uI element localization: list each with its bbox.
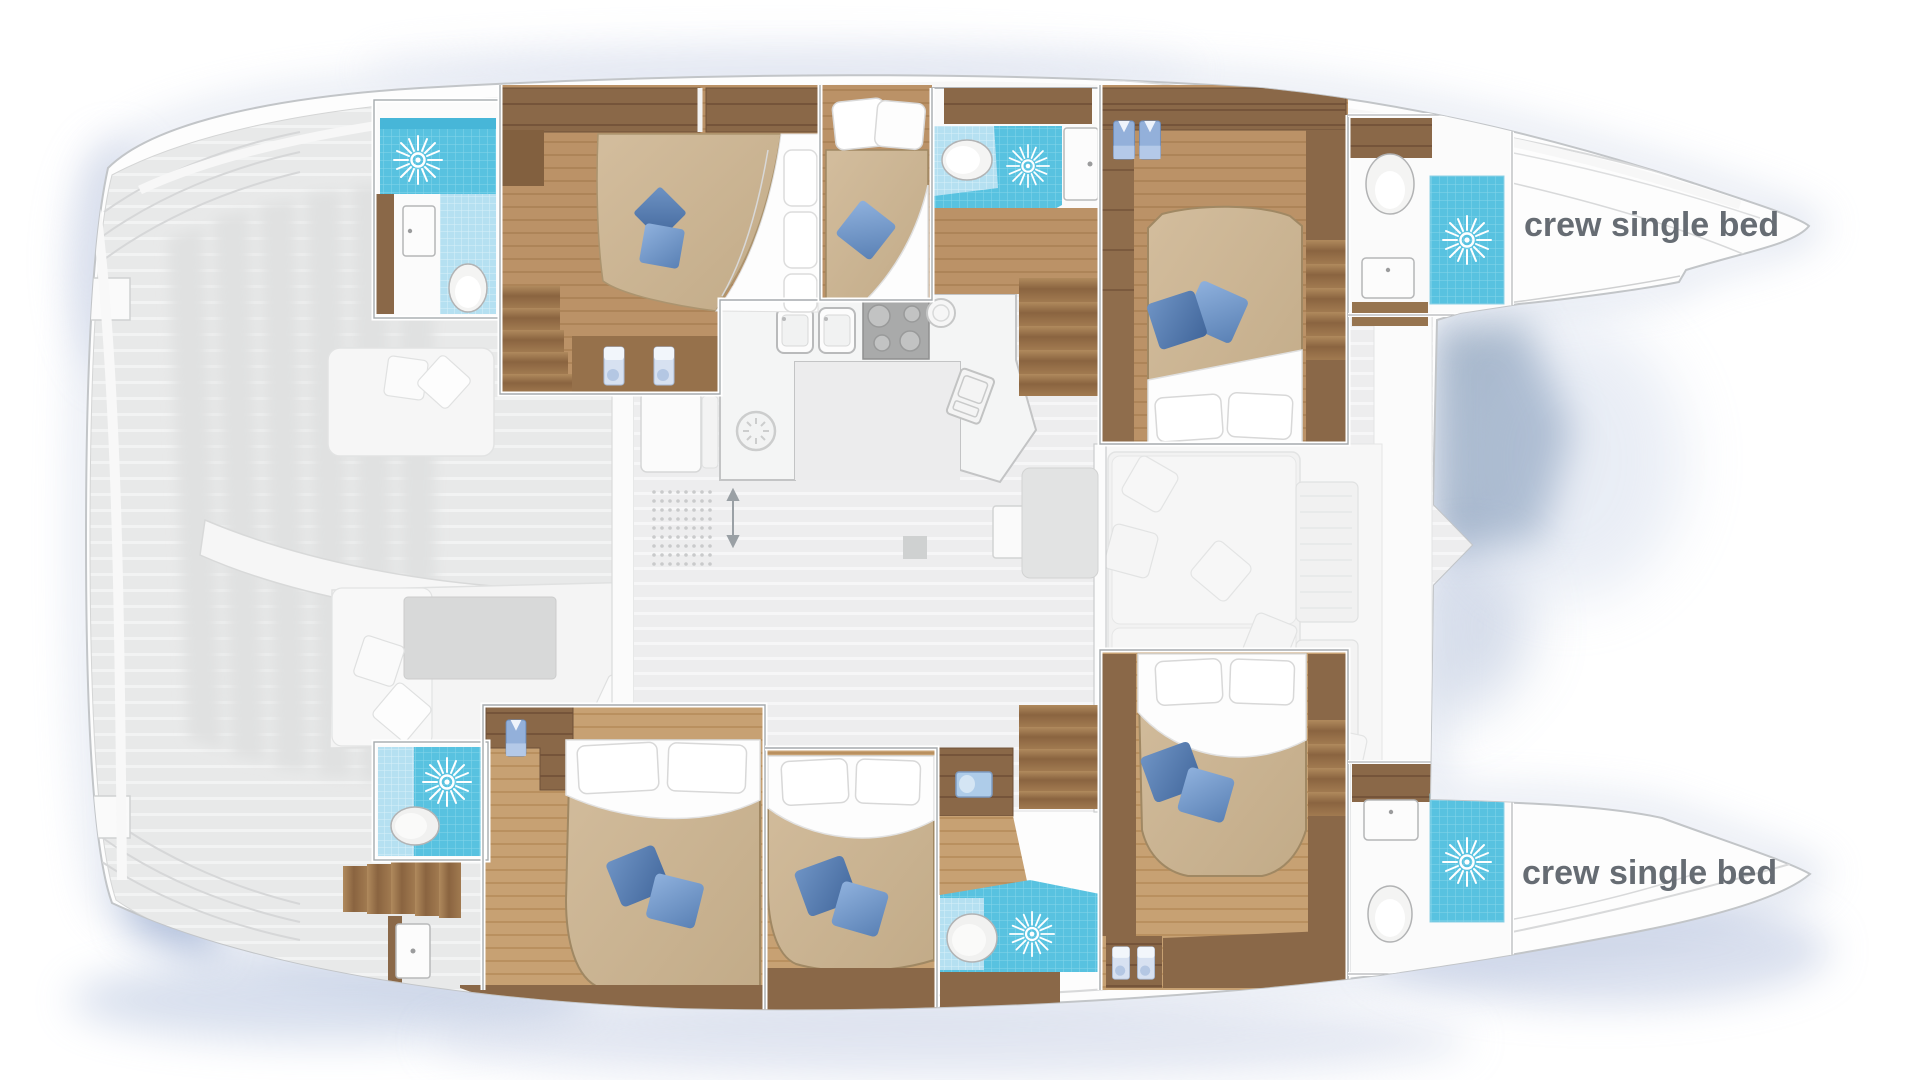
svg-text:crew single bed: crew single bed: [1524, 206, 1779, 244]
svg-text:crew single bed: crew single bed: [1522, 854, 1777, 892]
